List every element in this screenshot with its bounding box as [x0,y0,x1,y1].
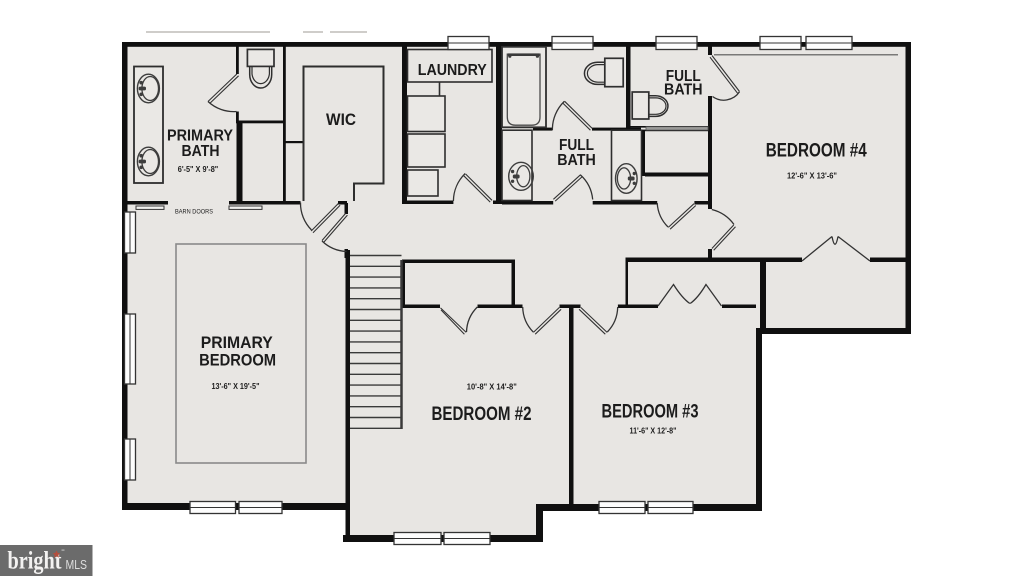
svg-text:13'-6" X 19'-5": 13'-6" X 19'-5" [212,381,260,391]
svg-text:BARN DOORS: BARN DOORS [175,209,213,216]
svg-text:bright: bright [8,548,63,575]
svg-text:BEDROOM #3: BEDROOM #3 [602,402,699,423]
svg-text:LAUNDRY: LAUNDRY [418,62,487,79]
svg-text:6'-5" X 9'-8": 6'-5" X 9'-8" [178,164,219,174]
svg-text:BATH: BATH [664,82,703,99]
svg-text:BEDROOM: BEDROOM [199,351,276,370]
svg-text:PRIMARY: PRIMARY [167,128,234,145]
svg-text:12'-6" X 13'-6": 12'-6" X 13'-6" [787,170,837,180]
svg-text:MLS: MLS [66,557,88,572]
svg-text:BEDROOM #2: BEDROOM #2 [432,404,532,425]
svg-text:PRIMARY: PRIMARY [201,333,274,352]
svg-text:BATH: BATH [557,152,596,169]
svg-text:BATH: BATH [182,143,220,160]
svg-text:11'-6" X 12'-8": 11'-6" X 12'-8" [630,426,677,436]
svg-text:BEDROOM #4: BEDROOM #4 [766,141,867,162]
svg-text:WIC: WIC [326,111,356,129]
svg-text:10'-8" X 14'-8": 10'-8" X 14'-8" [467,382,517,392]
